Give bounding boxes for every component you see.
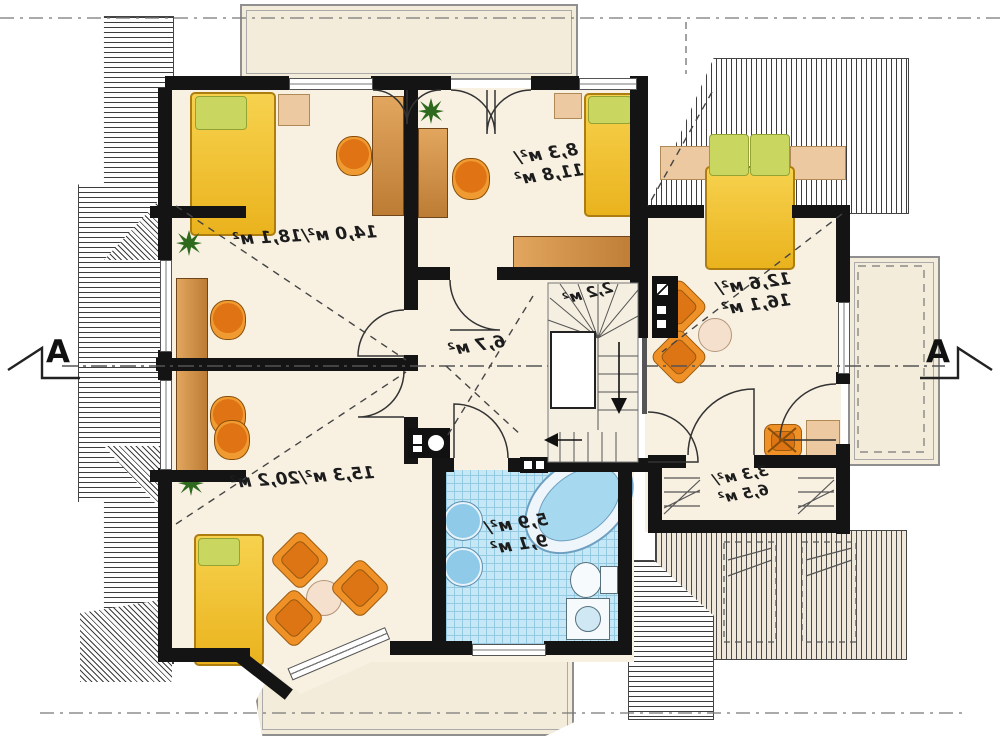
wall [836, 205, 850, 302]
wall [544, 641, 632, 655]
wall [390, 641, 436, 655]
window [289, 78, 373, 90]
wall [156, 358, 418, 371]
fireplace-flue [652, 276, 678, 338]
wall [531, 76, 579, 90]
wall [618, 462, 632, 655]
wall [648, 520, 850, 533]
desk-top-middle [418, 128, 448, 218]
pillow [195, 96, 247, 130]
window [838, 302, 850, 374]
wardrobe-hall [513, 236, 639, 271]
wall [165, 76, 289, 90]
wall [158, 468, 172, 654]
pillow [709, 134, 749, 176]
bed-double-right [705, 166, 795, 270]
headboard-shelf [790, 146, 846, 180]
partition [642, 338, 647, 414]
window [472, 644, 546, 656]
wall [404, 267, 450, 280]
wall [630, 88, 648, 338]
cabinet [806, 420, 840, 458]
desk-chair [336, 136, 372, 176]
window [160, 380, 172, 470]
balcony-top [240, 4, 578, 80]
vent-box [520, 457, 548, 473]
section-marker-right: A [926, 334, 950, 370]
pillow [750, 134, 790, 176]
wall [648, 205, 704, 218]
desk-divider-wall [372, 96, 404, 216]
desk-chair [214, 420, 250, 460]
desk-chair [210, 300, 246, 340]
wall-dormer-stub [150, 206, 246, 218]
section-marker-left: A [46, 334, 70, 370]
pillow [198, 538, 240, 566]
headboard-shelf [660, 146, 710, 180]
wall [158, 88, 172, 260]
wall [432, 458, 446, 655]
washer-door [575, 606, 601, 632]
toilet-tank [600, 566, 618, 594]
pillow [588, 96, 632, 124]
wall [432, 641, 472, 655]
nightstand [554, 93, 582, 119]
armchair-x [764, 424, 802, 458]
dresser-hall [408, 428, 450, 458]
toilet-bowl [570, 562, 602, 598]
window [160, 260, 172, 352]
desk-left-wall [176, 278, 208, 472]
floor-plan: 14,0 м²/18,1 м² 8,3 м²/ 11,8 м² 12,6 м²/… [0, 0, 1000, 736]
nightstand [278, 94, 310, 126]
window [579, 78, 637, 90]
